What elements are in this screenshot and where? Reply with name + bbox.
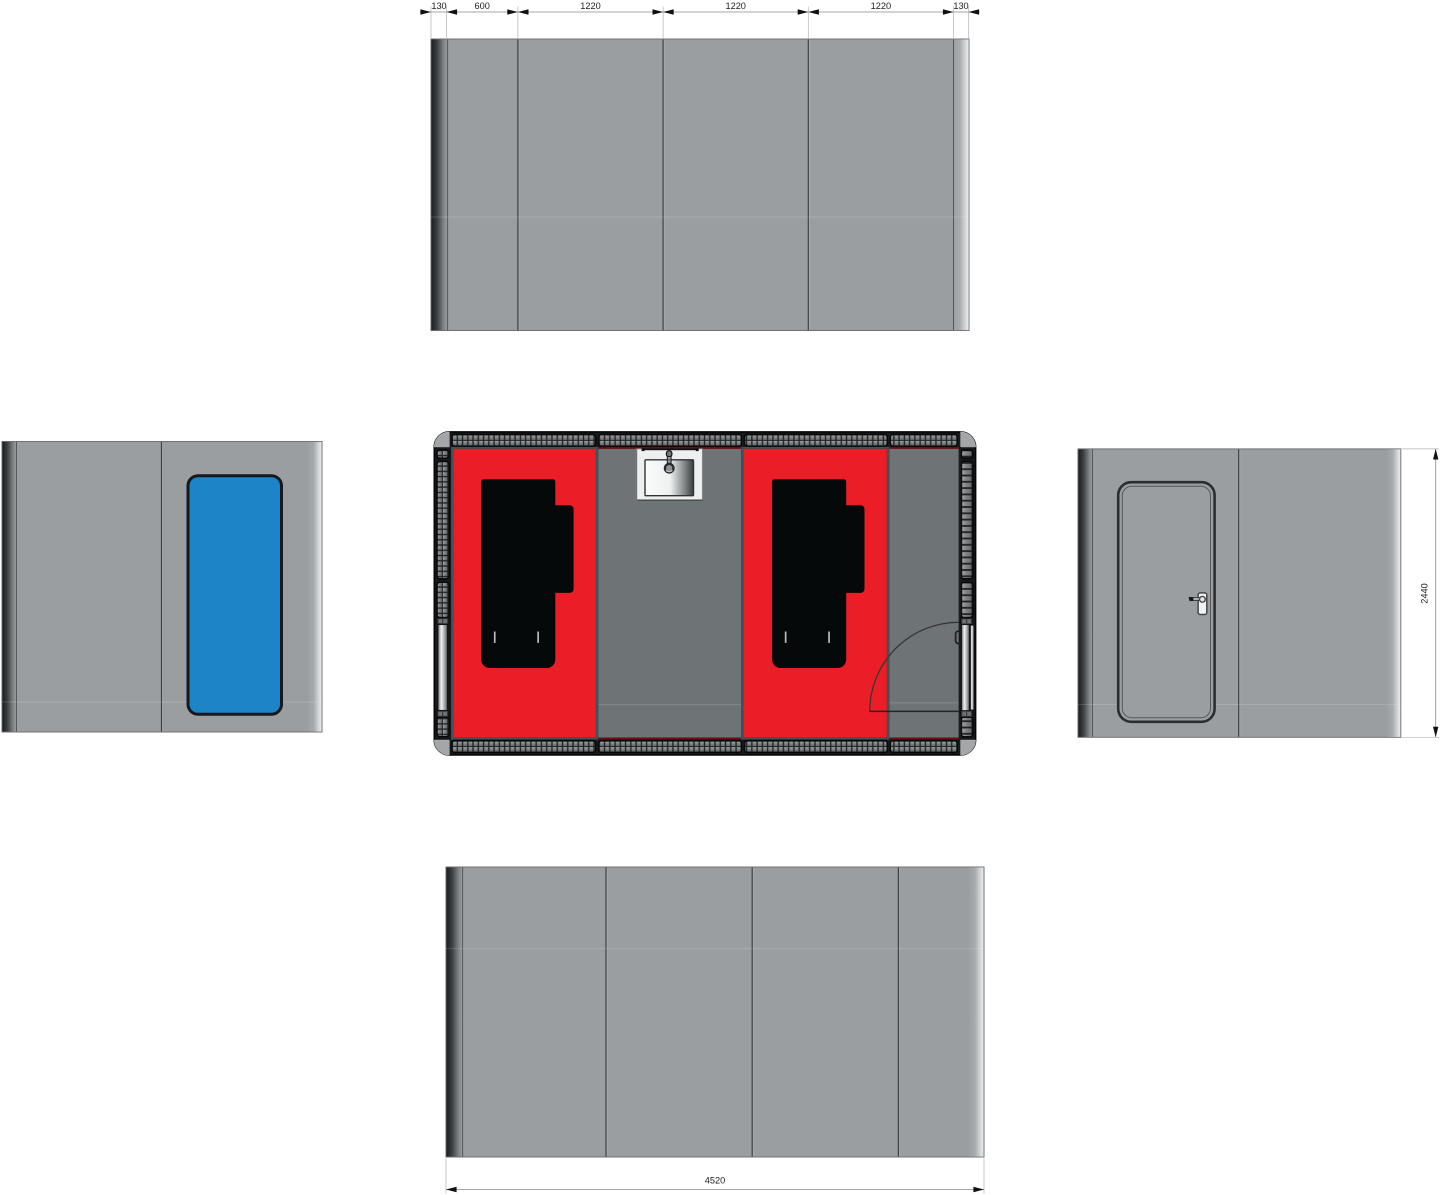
svg-text:1220: 1220: [725, 1, 745, 11]
svg-text:600: 600: [475, 1, 490, 11]
svg-text:2440: 2440: [1419, 583, 1429, 603]
svg-text:4520: 4520: [705, 1176, 725, 1186]
svg-text:1220: 1220: [580, 1, 600, 11]
svg-text:1220: 1220: [871, 1, 891, 11]
svg-text:130: 130: [431, 1, 446, 11]
svg-text:130: 130: [953, 1, 968, 11]
